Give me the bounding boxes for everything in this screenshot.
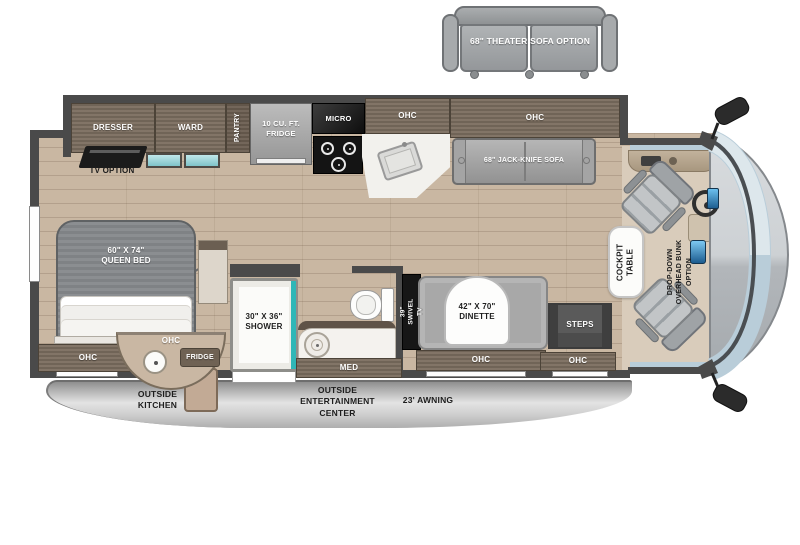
shower-top-wall: [230, 264, 300, 277]
entry-ohc: [540, 352, 616, 371]
microwave: [312, 103, 365, 134]
theater-sofa-foot: [580, 70, 589, 79]
theater-sofa-arm-right: [601, 14, 618, 72]
burner: [343, 142, 356, 155]
dinette-table: [444, 276, 510, 346]
toilet-top-wall: [352, 266, 400, 273]
dinette-window-bottom: [426, 371, 526, 377]
slideout-left-wall: [63, 95, 71, 157]
awning-band: [46, 380, 632, 428]
cockpit-table: [608, 226, 644, 298]
dinette-ohc: [416, 350, 546, 371]
kitchen-faucet: [402, 142, 407, 147]
toilet-tank: [381, 288, 394, 322]
teal-drawer: [184, 153, 220, 168]
pantry: [226, 103, 250, 153]
entertainment-compartment: [232, 371, 296, 383]
outside-kitchen-fridge: [180, 348, 220, 367]
rear-window: [29, 206, 40, 282]
med-cabinet: [296, 358, 402, 378]
vanity-sink-drain: [316, 344, 319, 347]
toilet-seat: [356, 295, 376, 315]
dash-vent: [669, 157, 677, 165]
sofa-cupholder: [458, 157, 465, 164]
theater-sofa-back: [454, 6, 606, 26]
theater-sofa-foot: [470, 70, 479, 79]
kitchen-ohc: [365, 98, 450, 134]
outside-kitchen-sink-drain: [154, 361, 158, 365]
wardrobe: [155, 103, 226, 153]
dash-screen: [707, 188, 719, 209]
theater-sofa-arm-left: [442, 14, 459, 72]
jack-knife-sofa: [452, 138, 596, 185]
bedside-cabinet: [198, 240, 228, 304]
toilet-bowl: [350, 290, 382, 320]
outside-kitchen-sink: [143, 350, 167, 374]
tv-option-tv: [78, 146, 147, 168]
shower: [230, 278, 298, 372]
side-mirror-top: [713, 95, 751, 127]
kitchen-sink-basin: [384, 148, 416, 174]
sofa-ohc: [450, 98, 620, 138]
console-screen: [690, 240, 706, 264]
slideout-right-wall: [620, 95, 628, 145]
rv-floorplan: OUTSIDE KITCHEN OUTSIDE ENTERTAINMENT CE…: [0, 0, 800, 545]
entry-door-opening: [552, 371, 608, 377]
tv-screen-line: [89, 150, 140, 153]
sofa-cushion-divider: [524, 142, 526, 181]
bedside-cabinet-top: [199, 241, 227, 250]
shower-glass: [291, 281, 296, 369]
burner: [321, 142, 334, 155]
vanity-sink: [304, 332, 330, 358]
burner: [331, 157, 346, 172]
entry-steps: [548, 303, 612, 349]
theater-sofa-cushion: [530, 24, 598, 72]
theater-sofa-foot: [525, 70, 534, 79]
refrigerator-door: [256, 158, 306, 164]
refrigerator: [250, 103, 312, 165]
theater-sofa-cushion: [460, 24, 528, 72]
teal-drawer: [146, 153, 182, 168]
cooktop: [313, 136, 363, 174]
sofa-cupholder: [583, 157, 590, 164]
theater-sofa-option: [442, 4, 618, 86]
